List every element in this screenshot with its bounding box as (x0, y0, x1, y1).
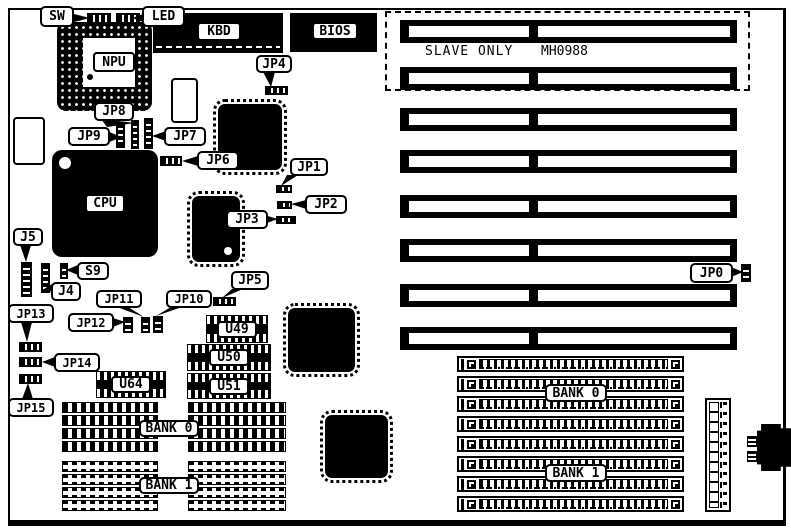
dram-socket-row (188, 474, 286, 485)
dram-bank1-label: BANK 1 (139, 477, 199, 494)
qfp-ic (325, 415, 388, 478)
jp6-label: JP6 (197, 151, 239, 170)
power-connector-divider (720, 402, 722, 508)
jp13-label: JP13 (8, 304, 54, 323)
jp15-label: JP15 (8, 398, 54, 417)
crystal-oscillator (13, 117, 45, 165)
isa-slot (400, 327, 737, 350)
jp2-jumper (277, 201, 292, 209)
isa-slot-segment (409, 333, 529, 344)
dram-row (188, 441, 286, 452)
dram-row (62, 441, 158, 452)
jp5-label: JP5 (231, 271, 269, 290)
simm-socket (457, 416, 684, 432)
jp5-jumper (213, 297, 236, 306)
part-number-text: MH0988 (541, 44, 588, 59)
dram-socket-row (188, 487, 286, 498)
u51-label: U51 (209, 378, 249, 395)
npu-pin1-dot (87, 74, 93, 80)
dram-row (188, 428, 286, 439)
jp15-jumper (19, 374, 42, 384)
jp13-jumper (19, 342, 42, 352)
j5-label: J5 (13, 228, 43, 246)
jp11-jumper (141, 317, 150, 333)
qfp-ic (192, 196, 240, 262)
isa-slot-segment (409, 201, 529, 212)
npu-label: NPU (93, 52, 135, 72)
isa-slot (400, 239, 737, 262)
bios-label: BIOS (312, 22, 358, 40)
isa-slot-segment (538, 156, 730, 167)
jp0-jumper (741, 264, 751, 282)
u51-chip: U51 (187, 373, 271, 399)
jp4-jumper (265, 86, 288, 95)
dram-bank0-label: BANK 0 (139, 420, 199, 437)
motherboard-diagram: SW LED NPU KBD BIOS JP4 JP8 JP9 JP7 JP6 … (0, 0, 791, 529)
isa-slot (400, 195, 737, 218)
keyboard-connector (757, 424, 791, 471)
isa-slot-segment (409, 245, 529, 256)
qfp-pin1-dot (224, 247, 232, 255)
dram-socket-row (62, 461, 158, 472)
simm-socket (457, 356, 684, 372)
jp3-label: JP3 (226, 210, 268, 229)
cpu-pin1-dot (59, 157, 71, 169)
s9-label: S9 (77, 262, 109, 280)
u50-chip: U50 (187, 344, 271, 371)
jp0-label: JP0 (690, 263, 733, 283)
simm-bank0-label: BANK 0 (545, 384, 607, 402)
simm-socket (457, 436, 684, 452)
isa-slot-segment (409, 290, 529, 301)
isa-slot-segment (409, 114, 529, 125)
isa-slot (400, 108, 737, 131)
isa-slot-segment (409, 156, 529, 167)
jp11-label: JP11 (96, 290, 142, 308)
j5-header (21, 262, 32, 297)
isa-slot-segment (538, 201, 730, 212)
dram-socket-row (62, 500, 158, 511)
jp8-jumper (131, 120, 139, 149)
crystal-oscillator (171, 78, 198, 123)
j4-label: J4 (51, 282, 81, 301)
keyboard-connector-pin (747, 451, 757, 462)
isa-slot-segment (538, 333, 730, 344)
keyboard-connector-pin (747, 436, 757, 447)
dram-row (188, 402, 286, 413)
jp9-label: JP9 (68, 127, 110, 146)
u49-label: U49 (217, 321, 257, 338)
isa-slot-segment (538, 114, 730, 125)
simm-socket (457, 496, 684, 512)
dram-row (62, 402, 158, 413)
u50-label: U50 (209, 349, 249, 366)
jp1-label: JP1 (290, 158, 328, 176)
cpu-label: CPU (85, 194, 125, 213)
jp6-jumper (160, 156, 182, 166)
slave-only-text: SLAVE ONLY (425, 44, 513, 59)
jp1-jumper (276, 185, 292, 193)
jp2-label: JP2 (305, 195, 347, 214)
simm-bank1-label: BANK 1 (545, 464, 607, 482)
j4-header (41, 263, 50, 293)
dram-socket-row (188, 500, 286, 511)
jp10-label: JP10 (166, 290, 212, 308)
kbd-label: KBD (197, 22, 241, 41)
jp12-jumper (123, 317, 133, 333)
jp14-label: JP14 (54, 353, 100, 372)
qfp-ic (288, 308, 355, 372)
isa-slot-segment (538, 245, 730, 256)
u64-label: U64 (111, 376, 151, 393)
u64-chip: U64 (96, 371, 166, 398)
sw-label: SW (40, 6, 74, 27)
jp9-jumper (116, 122, 125, 148)
jp12-label: JP12 (68, 313, 114, 332)
jp7-label: JP7 (164, 127, 206, 146)
jp14-jumper (19, 357, 42, 367)
kbd-chip-socket-line (156, 46, 280, 48)
jp8-label: JP8 (94, 102, 134, 121)
jp7-jumper (144, 118, 153, 149)
isa-slot (400, 150, 737, 173)
power-connector (705, 398, 731, 512)
isa-slot-segment (538, 290, 730, 301)
dram-socket-row (188, 461, 286, 472)
jp4-label: JP4 (256, 55, 292, 73)
u49-chip: U49 (206, 315, 268, 343)
isa-slot (400, 284, 737, 307)
power-connector-pins (709, 402, 719, 508)
dram-row (188, 415, 286, 426)
s9-jumper (60, 263, 68, 279)
jp3-jumper (276, 216, 296, 224)
jp10-jumper (153, 316, 163, 333)
led-label: LED (142, 6, 185, 27)
power-connector-hooks (723, 402, 727, 508)
